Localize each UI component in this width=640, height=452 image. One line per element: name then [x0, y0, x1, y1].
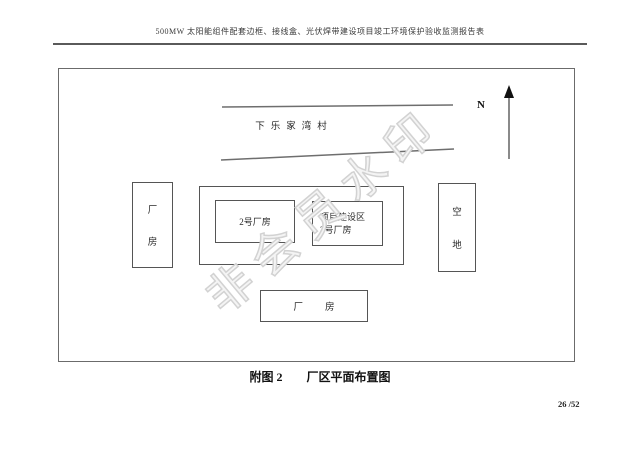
empty-land-char-2: 地: [452, 237, 462, 251]
header-divider: [53, 43, 587, 45]
empty-land-char-1: 空: [452, 204, 462, 218]
figure-caption: 附图 2厂区平面布置图: [0, 368, 640, 385]
left-factory-char-2: 房: [148, 234, 158, 248]
village-label: 下乐家湾村: [209, 118, 379, 132]
project-area-line-2: 3号厂房: [320, 224, 382, 237]
north-label: N: [477, 99, 485, 111]
left-factory-building: 厂 房: [132, 182, 173, 268]
project-area-line-1: 项目建设区: [320, 211, 382, 224]
document-header-title: 500MW 太阳能组件配套边框、接线盒、光伏焊带建设项目竣工环境保护验收监测报告…: [0, 26, 640, 37]
empty-land-area: 空 地: [438, 183, 476, 272]
project-construction-area: 项目建设区 3号厂房: [312, 201, 383, 246]
bottom-factory-building: 厂 房: [260, 290, 368, 322]
factory-building-2-label: 2号厂房: [239, 215, 271, 228]
page-number: 26 /52: [558, 399, 580, 409]
site-plan-figure: N 下乐家湾村 厂 房 2号厂房 项目建设区 3号厂房 空 地: [58, 68, 575, 362]
document-page: 500MW 太阳能组件配套边框、接线盒、光伏焊带建设项目竣工环境保护验收监测报告…: [0, 0, 640, 452]
factory-building-2: 2号厂房: [215, 200, 295, 243]
bottom-factory-char-1: 厂: [293, 299, 303, 313]
road-lines: [209, 94, 469, 174]
left-factory-char-1: 厂: [148, 202, 158, 216]
north-arrow-icon: [459, 79, 539, 169]
bottom-factory-char-2: 房: [325, 299, 335, 313]
central-compound: 2号厂房 项目建设区 3号厂房: [199, 186, 404, 265]
figure-caption-label: 附图 2: [249, 370, 282, 384]
figure-caption-title: 厂区平面布置图: [307, 370, 391, 384]
